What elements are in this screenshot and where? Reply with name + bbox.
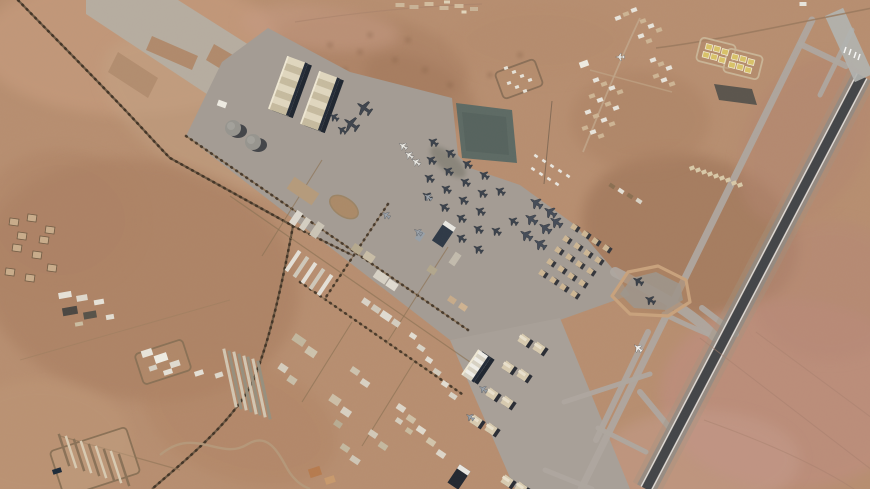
satellite-scene <box>0 0 870 489</box>
photo-grain-overlay <box>0 0 870 489</box>
satellite-image <box>0 0 870 489</box>
